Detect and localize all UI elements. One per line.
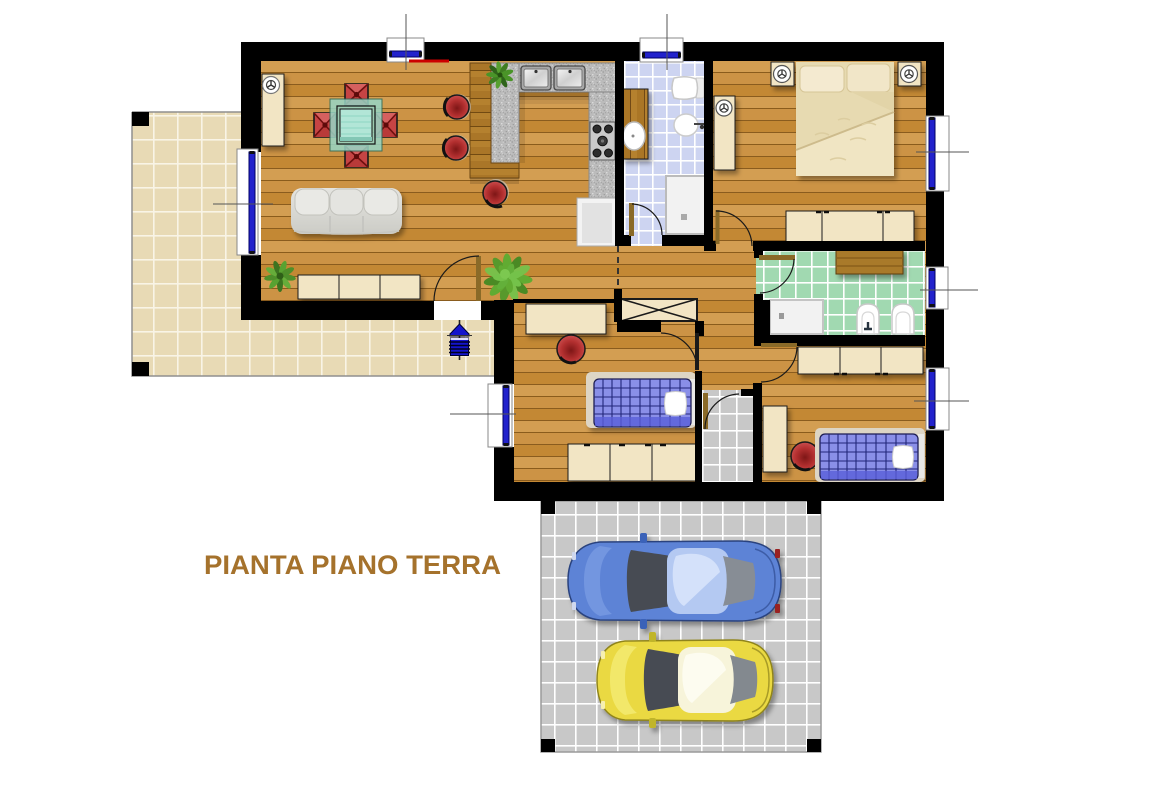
svg-text:PIANTA PIANO TERRA: PIANTA PIANO TERRA: [204, 550, 501, 580]
